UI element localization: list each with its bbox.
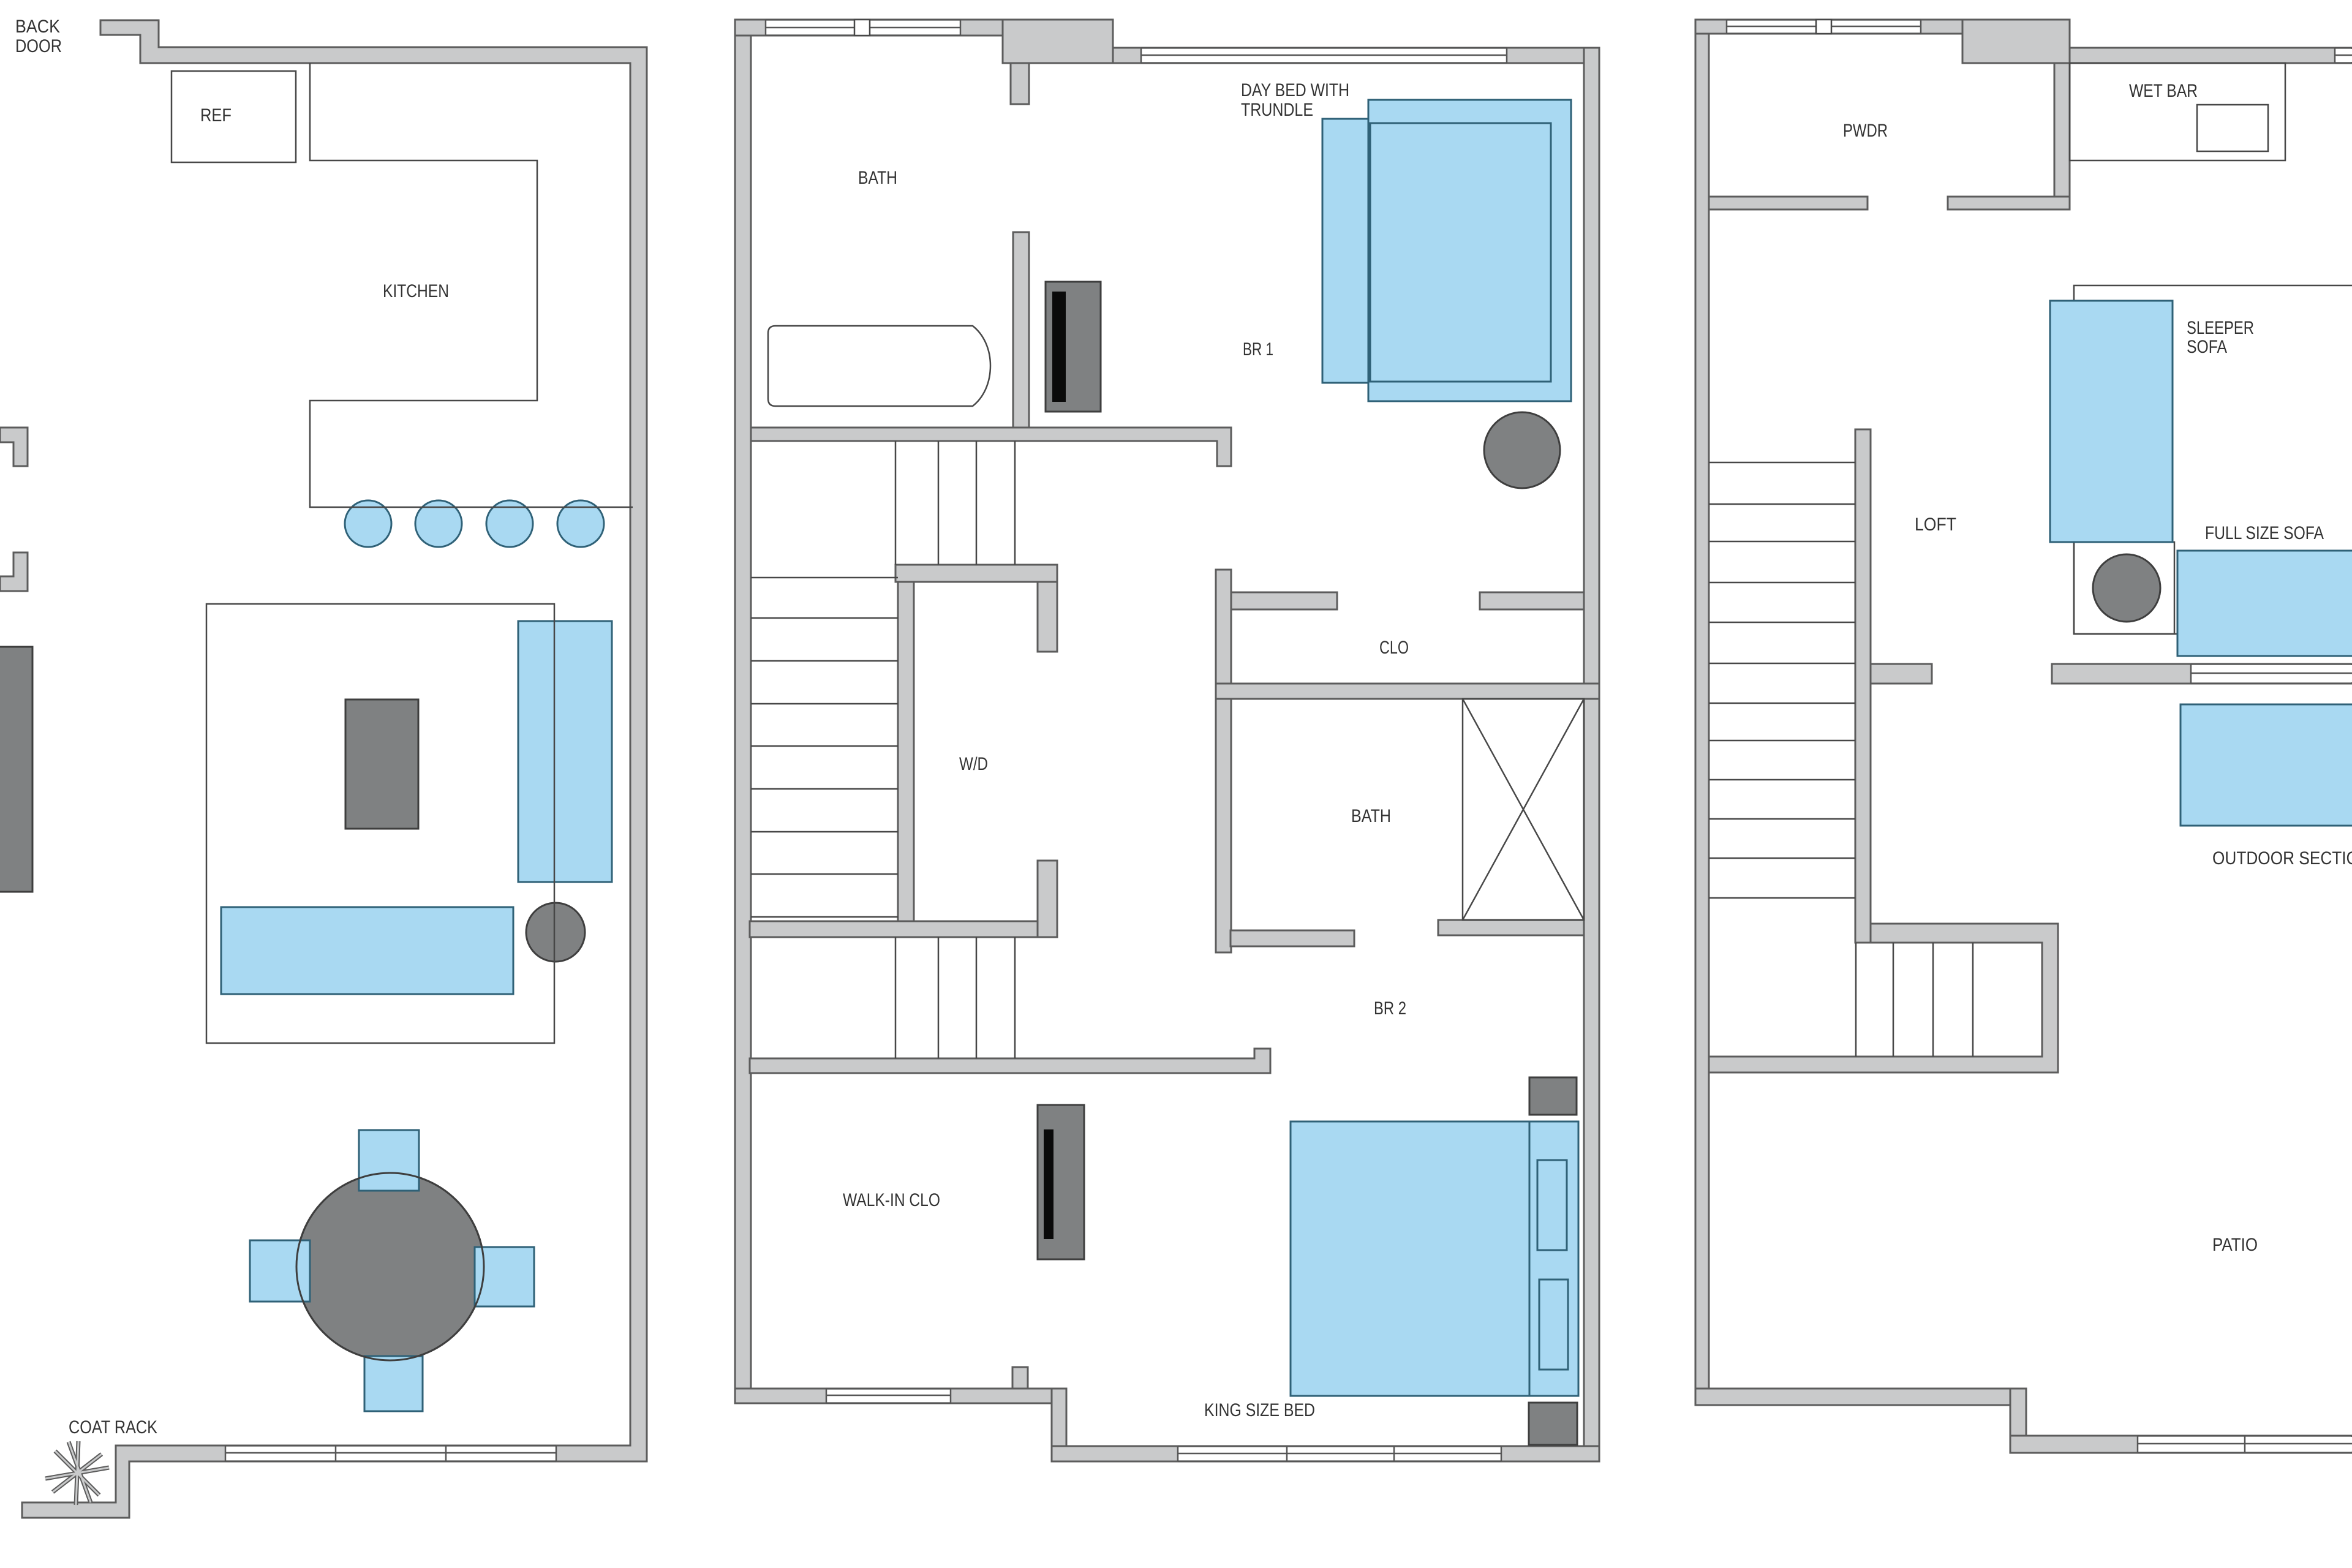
- svg-text:DOOR: DOOR: [15, 36, 62, 56]
- svg-text:WALK-IN CLO: WALK-IN CLO: [843, 1190, 940, 1210]
- svg-text:BR 1: BR 1: [1243, 339, 1273, 360]
- svg-text:TRUNDLE: TRUNDLE: [1241, 100, 1313, 120]
- svg-text:PWDR: PWDR: [1843, 121, 1888, 141]
- svg-text:COAT RACK: COAT RACK: [69, 1417, 157, 1438]
- svg-text:DAY BED WITH: DAY BED WITH: [1241, 80, 1349, 100]
- svg-text:REF: REF: [200, 105, 232, 126]
- svg-text:CLO: CLO: [1379, 638, 1409, 658]
- svg-text:BR 2: BR 2: [1374, 998, 1406, 1019]
- svg-text:BATH: BATH: [858, 168, 897, 188]
- svg-text:WET BAR: WET BAR: [2129, 81, 2198, 101]
- svg-text:FULL SIZE SOFA: FULL SIZE SOFA: [2205, 523, 2324, 543]
- svg-text:KING SIZE BED: KING SIZE BED: [1204, 1400, 1315, 1420]
- svg-text:SOFA: SOFA: [2187, 337, 2227, 357]
- svg-text:W/D: W/D: [959, 754, 988, 774]
- svg-text:KITCHEN: KITCHEN: [383, 281, 449, 301]
- svg-text:BACK: BACK: [15, 17, 60, 37]
- svg-text:SLEEPER: SLEEPER: [2187, 318, 2254, 338]
- svg-text:OUTDOOR SECTIONAL: OUTDOOR SECTIONAL: [2212, 848, 2352, 869]
- svg-text:PATIO: PATIO: [2212, 1235, 2258, 1255]
- svg-text:LOFT: LOFT: [1915, 514, 1956, 535]
- svg-text:BATH: BATH: [1351, 806, 1391, 826]
